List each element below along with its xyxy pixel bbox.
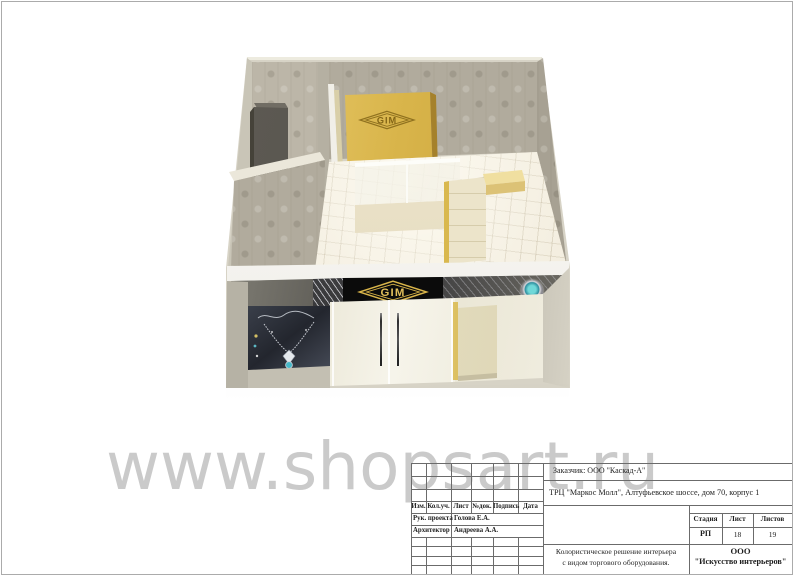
stage-value: РП [689,530,722,538]
gim-logo-interior-text: GIM [377,115,397,125]
jewelry-poster [248,306,330,370]
project-cell: ТРЦ "Маркос Молл", Алтуфьевское шоссе, д… [549,489,759,498]
grid-line [689,527,792,528]
col-header-sign: Подпись [493,503,518,510]
grid-line [426,537,427,574]
grid-line [543,544,792,545]
gim-logo-interior: GIM [358,110,416,130]
company-line2: "Искусство интерьеров" [689,558,792,567]
col-header-izm: Изм. [411,503,426,510]
description-line2: с видом торгового оборудования. [545,559,687,567]
grid-line [493,537,494,574]
role-name: Андреева А.А. [454,527,498,534]
grid-line [411,476,543,477]
role-name: Голова Е.А. [454,515,490,522]
grid-line [411,556,543,557]
grid-line [471,537,472,574]
grid-line [411,537,543,538]
grid-line [543,480,792,481]
grid-line [411,546,543,547]
grid-line [411,525,543,526]
col-header-list: Лист [451,503,471,510]
sheets-value: 19 [753,531,792,539]
col-header-kol: Кол.уч. [426,503,451,510]
grid-line [411,513,543,514]
grid-line [411,489,543,490]
grid-line [411,463,792,464]
grid-line [411,565,543,566]
grid-line [543,463,544,574]
grid-line [518,537,519,574]
drawing-sheet: GIM GIM [0,0,794,576]
sheets-header: Листов [753,516,792,524]
col-header-date: Дата [518,503,543,510]
gim-logo-fascia-text: GIM [380,287,405,299]
sheet-header: Лист [722,516,753,524]
col-header-doc: №док. [471,503,493,510]
role-label: Архитектор [413,527,450,534]
door-handle-left [380,313,382,366]
grid-line [689,513,792,514]
company-line1: ООО [689,547,792,556]
customer-cell: Заказчик: ООО "Каскад-А" [553,467,645,475]
sheet-value: 18 [722,531,753,539]
grid-line [543,505,792,506]
role-label: Рук. проекта [413,515,453,522]
grid-line [411,463,412,574]
interior-3d-render: GIM GIM [225,50,571,400]
door-handle-right [397,313,399,366]
description-line1: Колористическое решение интерьера [545,548,687,556]
grid-line [411,501,543,502]
stage-header: Стадия [689,516,722,524]
